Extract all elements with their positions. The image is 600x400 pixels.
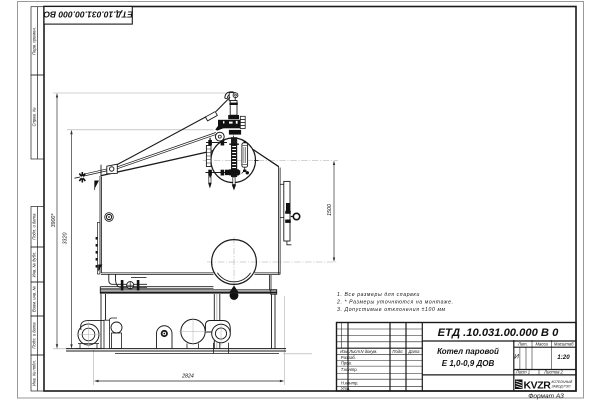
svg-text:1500: 1500 <box>327 204 333 216</box>
svg-text:Изм.Лист: Изм.Лист <box>340 349 360 354</box>
svg-text:2824: 2824 <box>181 374 194 380</box>
svg-text:Т.контр.: Т.контр. <box>341 367 358 372</box>
svg-text:И: И <box>514 353 519 360</box>
svg-text:Инв. № дубл.: Инв. № дубл. <box>31 252 36 278</box>
svg-text:Подп.: Подп. <box>392 349 403 354</box>
svg-text:Н.контр.: Н.контр. <box>341 380 359 385</box>
svg-text:Инв. № подл.: Инв. № подл. <box>31 360 36 386</box>
svg-text:Справ. №: Справ. № <box>31 107 36 126</box>
svg-text:1:20: 1:20 <box>557 354 570 361</box>
svg-text:ЗАВОД РЭП: ЗАВОД РЭП <box>552 384 572 388</box>
svg-text:Лист 1: Лист 1 <box>515 370 530 375</box>
svg-text:KVZR: KVZR <box>524 380 552 392</box>
svg-text:Формат А3: Формат А3 <box>528 393 564 400</box>
svg-text:3900*: 3900* <box>51 213 57 228</box>
svg-text:Масштаб: Масштаб <box>554 341 574 346</box>
svg-text:3. Допустимые отклонения ±10: 3. Допустимые отклонения ±100 мм <box>337 307 446 313</box>
svg-text:1. Все размеры для спарвки: 1. Все размеры для спарвки <box>337 292 420 298</box>
svg-text:Утв.: Утв. <box>341 386 351 391</box>
svg-text:Лит.: Лит. <box>517 341 528 346</box>
svg-text:Подп. и дата: Подп. и дата <box>31 213 36 240</box>
svg-text:N докум.: N докум. <box>361 349 378 354</box>
svg-text:3320: 3320 <box>63 233 69 245</box>
svg-text:Подп. и дата: Подп. и дата <box>31 322 36 349</box>
svg-text:Перв. примен.: Перв. примен. <box>31 27 36 55</box>
svg-text:Листов 2: Листов 2 <box>543 370 563 375</box>
svg-text:Разраб.: Разраб. <box>341 355 356 360</box>
svg-text:ЕТД .10.031.00.000 В 0: ЕТД .10.031.00.000 В 0 <box>438 327 559 339</box>
svg-text:Дата: Дата <box>407 349 420 354</box>
svg-text:Взам. инв. №: Взам. инв. № <box>31 286 36 312</box>
svg-text:Пров.: Пров. <box>341 361 352 366</box>
svg-text:Е 1,0-0,9 ДОВ: Е 1,0-0,9 ДОВ <box>442 359 495 368</box>
svg-text:2. * Размеры уточняются на мон: 2. * Размеры уточняются на монтаже. <box>336 300 454 306</box>
svg-text:ЕТД.10.031.00.000 ВО: ЕТД.10.031.00.000 ВО <box>43 10 133 20</box>
svg-text:Масса: Масса <box>536 341 549 346</box>
svg-text:Котел паровой: Котел паровой <box>437 347 499 356</box>
